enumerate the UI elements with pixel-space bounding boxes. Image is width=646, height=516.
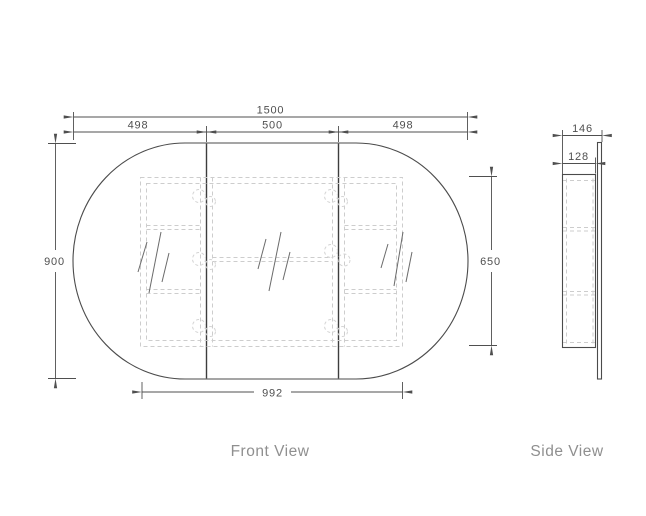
dim-text-door-left: 498 [128,120,149,132]
dim-overall-depth: 146 [563,123,603,174]
mirror-hatch-marks [138,232,412,293]
dim-text-door-middle: 500 [262,120,283,132]
dim-carcass-width: 992 [142,382,403,400]
dim-text-overall-height: 900 [44,256,65,268]
side-view-outline [563,143,602,380]
side-mirror-door [598,143,602,380]
dim-carcass-height: 650 [469,177,501,346]
dim-text-carcass-width: 992 [262,388,283,400]
side-view-dimensions: 146 128 [563,123,603,174]
dim-text-overall-depth: 146 [572,123,593,135]
front-view: 1500 498 500 498 900 [44,105,501,461]
side-view-hidden-details [563,179,596,344]
front-view-label: Front View [231,443,310,460]
dim-overall-height: 900 [44,144,76,379]
dim-text-carcass-depth: 128 [568,151,589,163]
dim-text-carcass-height: 650 [480,256,501,268]
dim-text-overall-width: 1500 [257,105,285,117]
dim-text-door-right: 498 [393,120,414,132]
dim-carcass-depth: 128 [563,151,596,174]
technical-drawing-page: 1500 498 500 498 900 [0,0,646,516]
side-view: 146 128 Side View [530,123,603,460]
dim-door-widths: 498 500 498 [74,120,468,143]
front-view-hidden-details [141,178,403,347]
side-carcass-body [563,175,596,348]
hinges-hidden [193,190,351,337]
front-view-dimensions: 1500 498 500 498 900 [44,105,501,400]
cabinet-drawing-canvas: 1500 498 500 498 900 [0,0,646,516]
side-view-label: Side View [530,443,603,460]
